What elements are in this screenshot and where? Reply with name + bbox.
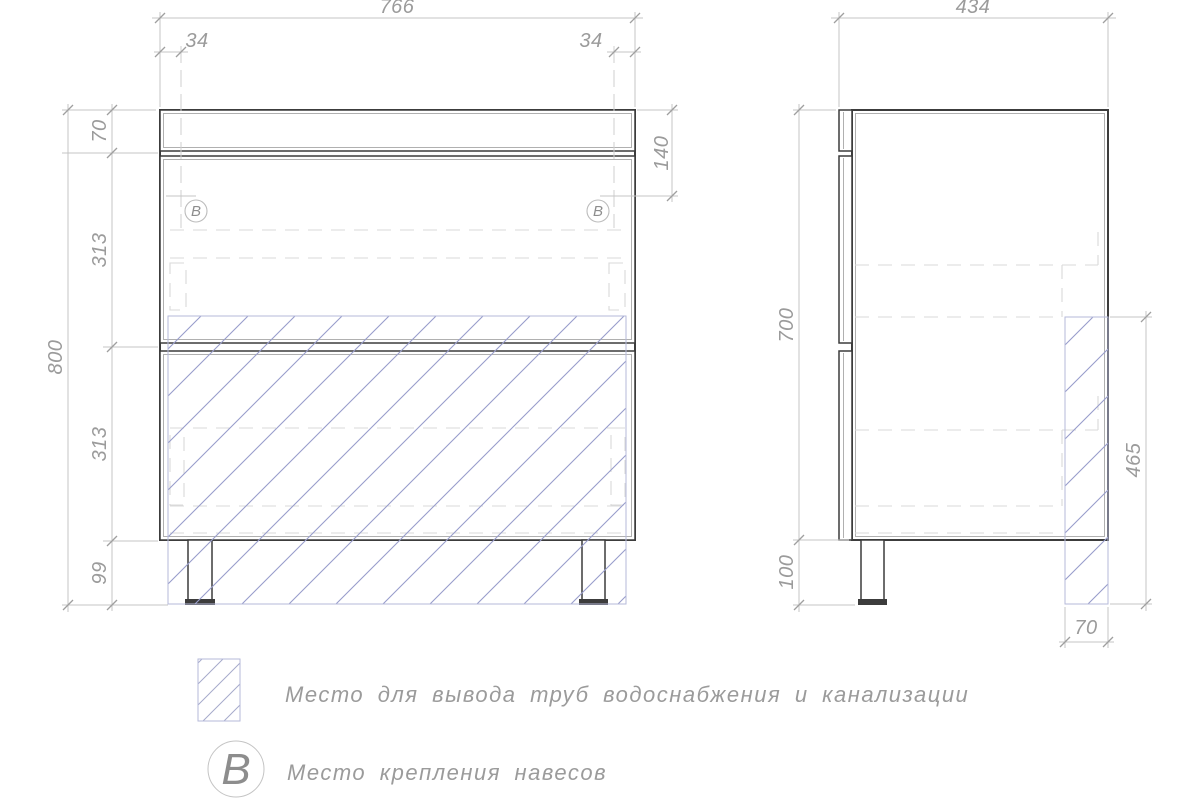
dim-side-pipe-zone-depth: 70 <box>1074 617 1097 639</box>
legend-mount-label: Место крепления навесов <box>287 760 607 785</box>
dim-side-body-height: 700 <box>776 308 798 343</box>
dim-front-inset-left: 34 <box>185 30 208 52</box>
front-view: B B 766 34 34 140 70 313 313 99 800 <box>45 0 678 612</box>
technical-drawing: B B 766 34 34 140 70 313 313 99 800 <box>0 0 1200 800</box>
drawing-canvas: B B 766 34 34 140 70 313 313 99 800 <box>0 0 1200 800</box>
side-leg <box>858 540 887 605</box>
dim-front-inset-right: 34 <box>579 30 602 52</box>
legend: Место для вывода труб водоснабжения и ка… <box>198 659 969 797</box>
side-pipe-zone-hatch <box>1065 317 1108 604</box>
dim-side-pipe-zone-height: 465 <box>1123 442 1145 477</box>
side-front-top <box>839 110 852 151</box>
front-pipe-zone-hatch <box>168 316 626 604</box>
side-front-bottom <box>839 351 852 540</box>
side-front-middle <box>839 156 852 343</box>
side-leg-body <box>861 540 884 600</box>
dim-front-leg-height: 99 <box>89 561 111 584</box>
legend-pipe-zone-label: Место для вывода труб водоснабжения и ка… <box>285 682 969 707</box>
mount-marker-right-label: B <box>593 203 603 220</box>
dim-front-total-height: 800 <box>45 340 67 375</box>
dim-side-depth: 434 <box>956 0 991 18</box>
side-leg-foot <box>858 599 887 605</box>
legend-mount-marker-letter: B <box>221 745 250 794</box>
dim-front-mount-offset: 140 <box>651 136 673 171</box>
mount-marker-left-label: B <box>191 203 201 220</box>
dim-front-width: 766 <box>380 0 415 18</box>
side-view: 434 700 100 465 70 <box>776 0 1152 648</box>
front-drawer-front-top <box>160 110 635 151</box>
front-drawer-front-middle <box>160 156 635 343</box>
dim-front-upper-section: 313 <box>89 233 111 268</box>
dim-front-lower-section: 313 <box>89 427 111 462</box>
dim-side-leg-height: 100 <box>776 555 798 590</box>
dim-front-top-drawer: 70 <box>89 119 111 142</box>
legend-hatch-swatch <box>198 659 240 721</box>
